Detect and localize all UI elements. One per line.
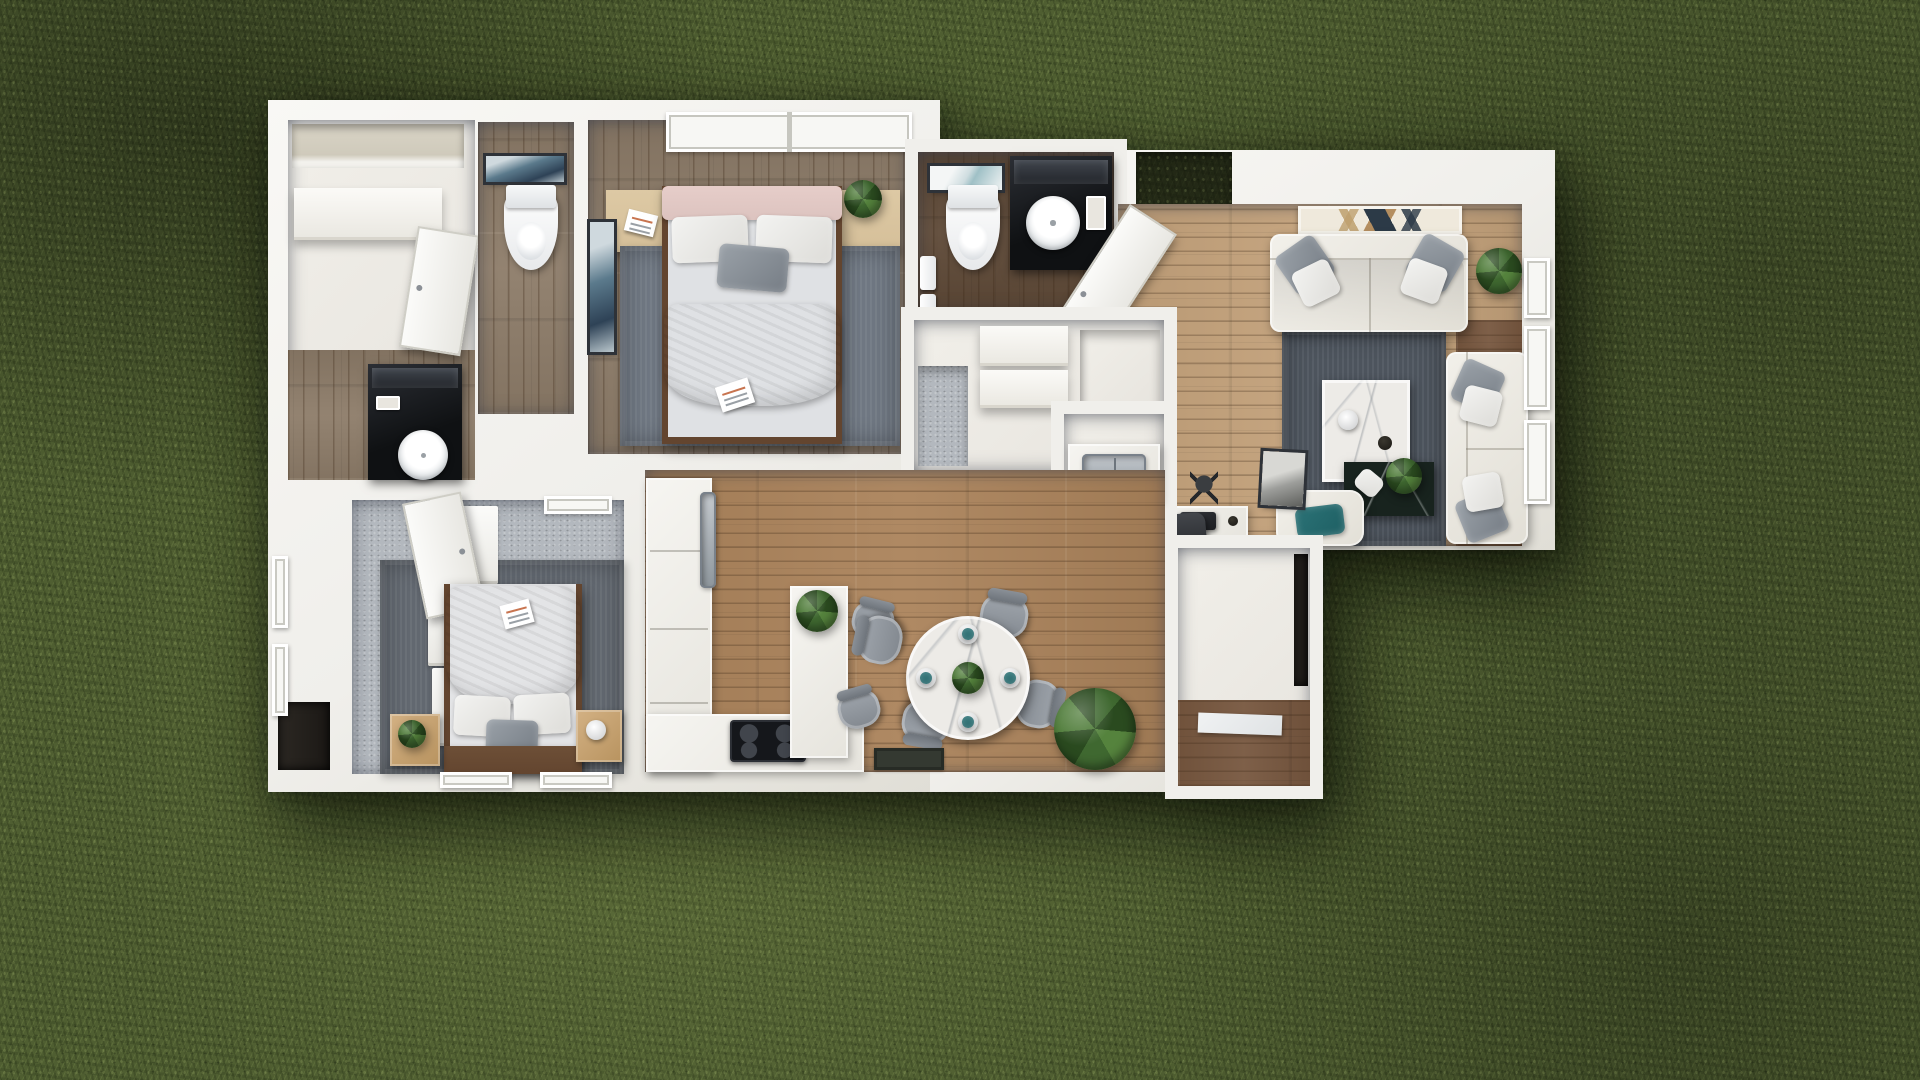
scene-canvas (0, 0, 1920, 1080)
bedroom2-window-1 (272, 556, 288, 628)
floor-plan (0, 0, 1920, 1080)
closet-niche (292, 124, 464, 168)
media-console (1298, 206, 1462, 234)
toilet-bathroom-2 (946, 188, 1000, 270)
wardrobe-door-ajar (399, 226, 479, 356)
amenity-tray-2 (1086, 196, 1106, 230)
bedroom1-windows (666, 112, 912, 152)
vanity2-mirror (1014, 160, 1108, 184)
pantry-cell (1080, 330, 1160, 408)
living-window-1 (1524, 258, 1550, 318)
sofa2-seam-mid (1466, 448, 1528, 450)
room-bedroom-2 (352, 500, 624, 774)
carpet-closet (918, 366, 968, 466)
towel-2 (920, 294, 936, 322)
bed-2 (444, 584, 582, 774)
room-kitchen-dining (645, 470, 1165, 772)
vanity-closet-suite (368, 364, 462, 480)
bedroom2-window-4 (540, 772, 612, 788)
vessel-sink-2 (1026, 196, 1080, 250)
linen-shelf-upper (980, 326, 1068, 366)
bed1-bolster (662, 186, 842, 220)
dining-centerpiece-plant (952, 662, 984, 694)
coffee-table-dish (1338, 410, 1358, 430)
armchair-teal-pillow (1294, 503, 1345, 539)
leaning-art-frame (1261, 451, 1306, 507)
room-wc (478, 122, 574, 414)
room-living (1118, 204, 1522, 546)
bedroom2-window-2 (272, 644, 288, 716)
room-entry-hall (1178, 548, 1310, 786)
dining-chair-west (853, 612, 906, 668)
island-plant (796, 590, 838, 632)
dining-floor-plant (1054, 688, 1136, 770)
fridge-front (700, 492, 716, 588)
bed1-duvet (664, 304, 840, 406)
bed1-accent-pillow (716, 243, 790, 293)
wc-wall-art (486, 156, 564, 182)
living-window-2 (1524, 326, 1550, 410)
amenity-tray (376, 396, 400, 410)
bedroom2-vent-window (544, 496, 612, 514)
bed2-headboard (444, 746, 582, 774)
sofa-two-seat (1446, 352, 1528, 544)
bedroom1-plant (844, 180, 882, 218)
room-bedroom-1 (588, 120, 906, 454)
doormat (874, 748, 944, 770)
side-table-plant (1386, 458, 1422, 494)
toilet-wc (504, 188, 558, 270)
sofa-three-seat (1270, 234, 1468, 332)
bedroom2-window-3 (440, 772, 512, 788)
towel-1 (920, 256, 936, 290)
living-window-3 (1524, 420, 1550, 504)
bedroom1-wall-art (590, 222, 614, 352)
desk-cup (1228, 516, 1238, 526)
sofa2-pillow-white-bottom (1461, 471, 1505, 513)
vessel-sink (398, 430, 448, 480)
nightstand-lamp (586, 720, 606, 740)
entry-porch-grass (1136, 152, 1232, 210)
linen-shelf-lower (980, 370, 1068, 408)
nightstand-plant (398, 720, 426, 748)
coffee-table-bowl (1378, 436, 1392, 450)
entry-runner-mat (1198, 713, 1283, 736)
floor-lamp (1190, 468, 1218, 508)
room-closet-suite (288, 120, 475, 480)
vanity-mirror (372, 368, 458, 388)
living-corner-plant (1476, 248, 1522, 294)
entry-hall-recess (1294, 554, 1308, 686)
bed-1 (662, 186, 842, 444)
